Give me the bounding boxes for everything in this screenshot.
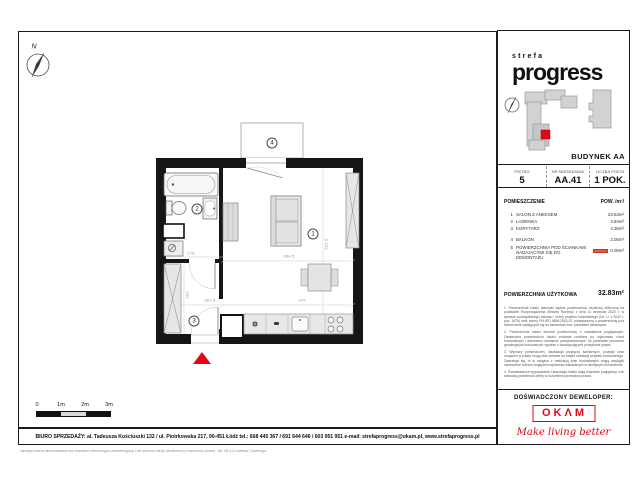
bathroom-door [189, 263, 215, 289]
sofa [271, 196, 301, 246]
dim-hall-height: 202 [185, 291, 190, 298]
room-row-bathroom: 2ŁAZIENKA4.84m² [508, 219, 624, 224]
info-rooms-count-label: LICZBA POKOI [590, 170, 630, 174]
disclaimer-paragraph: 1. Powierzchnia lokalu stanowić będzie p… [504, 306, 624, 328]
total-area-label: POWIERZCHNIA UŻYTKOWA [504, 292, 577, 298]
room-table-header-area: POW. /m²/ [601, 199, 624, 205]
room-row-demountable-walls: 5POWIERZCHNIA POD ŚCIANKAMI NADAJĄCYMI S… [508, 245, 624, 260]
balcony-door [246, 158, 286, 178]
floor-plan-drawing [19, 32, 496, 427]
north-label: N [31, 44, 36, 51]
building-label: BUDYNEK AA [571, 152, 625, 161]
divider [498, 187, 629, 188]
okam-logo: OKΛM [532, 405, 595, 422]
floor-plan-area: N 1 2 3 4 454.5 515.5 379 261.5 202 176 … [18, 31, 497, 428]
legal-disclaimer: 1. Powierzchnia lokalu stanowić będzie p… [504, 306, 624, 388]
room-row-salon: 1SALON Z ANEKSEM23.63m² [508, 212, 624, 217]
minimap-building-aa [525, 90, 577, 150]
scale-label-3m: 3m [105, 402, 113, 408]
entrance-marker [193, 352, 211, 364]
okam-tagline: Make living better [498, 427, 629, 438]
scale-label-0: 0 [35, 402, 38, 408]
kitchen-counter [244, 314, 353, 334]
developer-label: DOŚWIADCZONY DEWELOPER: [498, 395, 629, 401]
bathroom-cabinet [164, 241, 183, 256]
dim-salon-height: 515.5 [324, 238, 329, 249]
disclaimer-paragraph: 4. Przedstawione wyposażenie i aranżacja… [504, 370, 624, 379]
salon-wardrobe [346, 173, 359, 248]
faucet-icon [274, 322, 279, 325]
dim-bath-width: 176 [187, 251, 194, 256]
info-unit-number-value: AA.41 [547, 175, 589, 186]
tall-kitchen-unit [223, 203, 238, 241]
info-floor-value: 5 [498, 175, 546, 186]
minimap-north-arrow-icon [505, 97, 519, 113]
scale-bar: 0 1m 2m 3m [36, 402, 110, 419]
dim-salon-width: 454.5 [283, 254, 294, 259]
sales-office-bar: BIURO SPRZEDAŻY: al. Tadeusza Kościuszki… [18, 428, 497, 445]
minimap-building-neighbor [589, 90, 611, 128]
toilet [166, 201, 186, 215]
fridge [221, 315, 243, 338]
scale-label-1m: 1m [57, 402, 65, 408]
info-rooms-count-value: 1 POK. [590, 175, 630, 186]
apartment-card-page: N 1 2 3 4 454.5 515.5 379 261.5 202 176 … [0, 0, 640, 480]
dim-hall-width: 261.5 [204, 298, 215, 303]
info-floor: PIĘTRO 5 [498, 166, 546, 187]
total-area-value: 32.83m² [598, 290, 624, 297]
hall-wardrobe [164, 264, 181, 333]
disclaimer-paragraph: 3. Wymiary pomieszczeń, lokalizacja przy… [504, 350, 624, 367]
washing-machine [163, 224, 184, 238]
room-marker-hall: 3 [189, 316, 200, 327]
demountable-wall-legend-swatch [593, 249, 608, 254]
room-marker-bathroom: 2 [192, 204, 203, 215]
minimap-unit-highlight [541, 130, 550, 139]
dim-kitchen-width: 379 [298, 298, 305, 303]
legal-footnote: Niniejsza karta mieszkaniowa ma charakte… [20, 449, 267, 453]
room-marker-balcony: 4 [267, 138, 278, 149]
info-sidebar: strefa progress BUDYNEK AA PIĘTRO [497, 30, 630, 445]
info-unit-number: NR MIESZKANIA AA.41 [546, 166, 589, 187]
divider [498, 389, 629, 390]
sales-office-text: BIURO SPRZEDAŻY: al. Tadeusza Kościuszki… [35, 434, 479, 440]
bathtub [164, 173, 218, 196]
room-marker-salon: 1 [308, 229, 319, 240]
disclaimer-paragraph: 2. Powierzchnia lokalu stanowi powierzch… [504, 330, 624, 347]
info-unit-number-label: NR MIESZKANIA [547, 170, 589, 174]
scale-bar-segments [36, 411, 111, 417]
room-row-balcony: 4BALKON2.05m² [508, 237, 624, 242]
north-arrow-icon [27, 53, 49, 77]
info-rooms-count: LICZBA POKOI 1 POK. [589, 166, 630, 187]
room-table-header-name: POMIESZCZENIE [504, 199, 545, 205]
scale-label-2m: 2m [81, 402, 89, 408]
site-minimap [501, 86, 628, 152]
room-row-hall: 3KORYTARZ4.36m² [508, 226, 624, 231]
brand-logo: strefa progress [512, 53, 602, 84]
divider [498, 164, 629, 165]
washbasin [203, 198, 217, 219]
info-floor-label: PIĘTRO [498, 170, 546, 174]
dining-table [301, 264, 338, 291]
brand-logo-progress: progress [512, 61, 602, 84]
